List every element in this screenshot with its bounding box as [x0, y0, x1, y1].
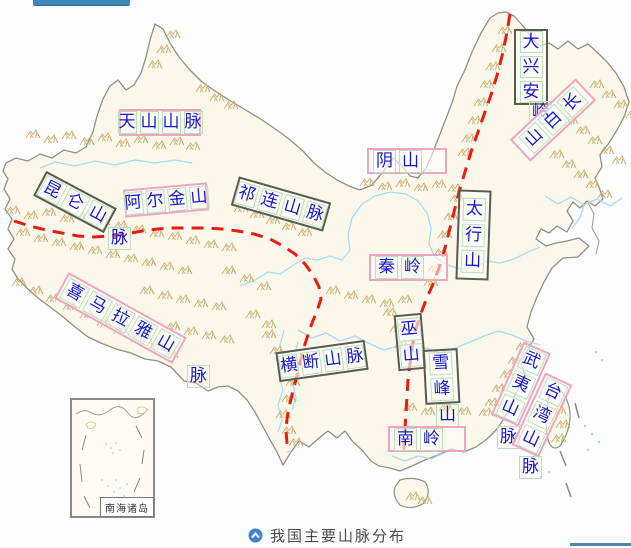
label-char: 山 — [322, 347, 344, 372]
label-char: 祁 — [234, 180, 260, 208]
label-char: 岭 — [401, 256, 424, 279]
label-char: 脉 — [302, 200, 328, 228]
label-char: 阿 — [123, 191, 144, 216]
label-char: 山 — [399, 342, 424, 367]
label-char: 金 — [166, 187, 187, 212]
label-char: 连 — [256, 187, 282, 215]
caption-text: 我国主要山脉分布 — [270, 525, 406, 546]
label-char: 脉 — [184, 111, 203, 134]
map-label-taihangshan[interactable]: 太行山 — [455, 189, 491, 280]
label-char: 行 — [462, 223, 486, 247]
bottom-edge-bar — [570, 543, 631, 546]
label-char: 山 — [399, 150, 422, 173]
label-char: 山 — [140, 111, 159, 134]
label-char: 横 — [278, 353, 300, 378]
caption: 我国主要山脉分布 — [248, 525, 406, 546]
label-char: 天 — [118, 111, 137, 134]
label-char: 岭 — [420, 428, 443, 451]
label-char: 雪 — [429, 351, 453, 375]
label-char: 断 — [300, 350, 322, 375]
label-char: 山 — [188, 185, 209, 210]
label-char: 峰 — [430, 377, 454, 401]
map-label-taiwanshan-overflow[interactable]: 脉 — [519, 456, 542, 479]
label-char: 山 — [495, 393, 525, 423]
caption-bullet-icon — [248, 528, 263, 543]
label-char: 秦 — [375, 256, 398, 279]
korea-coast-line — [588, 203, 599, 254]
map-label-kunlun-overflow[interactable]: 脉 — [108, 227, 131, 250]
label-char: 山 — [162, 111, 181, 134]
label-char: 巫 — [396, 317, 421, 342]
label-char: 山 — [461, 249, 485, 273]
label-char: 兴 — [520, 56, 543, 78]
page: 天山山脉 昆仑山 脉 阿尔金山 祁连山脉 阴山 大兴安 岭 长白山 太行山 秦岭… — [0, 0, 631, 548]
top-edge-bar — [33, 0, 130, 6]
map-label-tianshan[interactable]: 天山山脉 — [119, 109, 201, 136]
map-label-xuefengshan-overflow[interactable]: 山 — [436, 404, 459, 427]
label-char: 脉 — [344, 344, 366, 369]
label-char: 尔 — [145, 189, 166, 214]
map-label-qinling[interactable]: 秦岭 — [369, 254, 448, 281]
label-char: 阴 — [373, 150, 396, 173]
map-label-xuefengshan[interactable]: 雪峰 — [423, 348, 461, 405]
map-label-daxinganling[interactable]: 大兴安 — [514, 29, 548, 105]
label-char: 南 — [394, 428, 417, 451]
south-china-sea-inset: 南海诸岛 — [70, 398, 155, 518]
map-label-yinshan[interactable]: 阴山 — [367, 148, 447, 174]
inset-title-box: 南海诸岛 — [100, 497, 154, 517]
label-char: 大 — [520, 31, 543, 53]
label-char: 太 — [463, 197, 487, 221]
label-char: 山 — [279, 193, 305, 221]
map-label-wushan[interactable]: 巫山 — [394, 313, 427, 371]
map-label-ximalaya-overflow[interactable]: 脉 — [187, 365, 210, 388]
label-char: 安 — [520, 81, 543, 103]
map-label-nanling[interactable]: 南岭 — [388, 426, 466, 452]
